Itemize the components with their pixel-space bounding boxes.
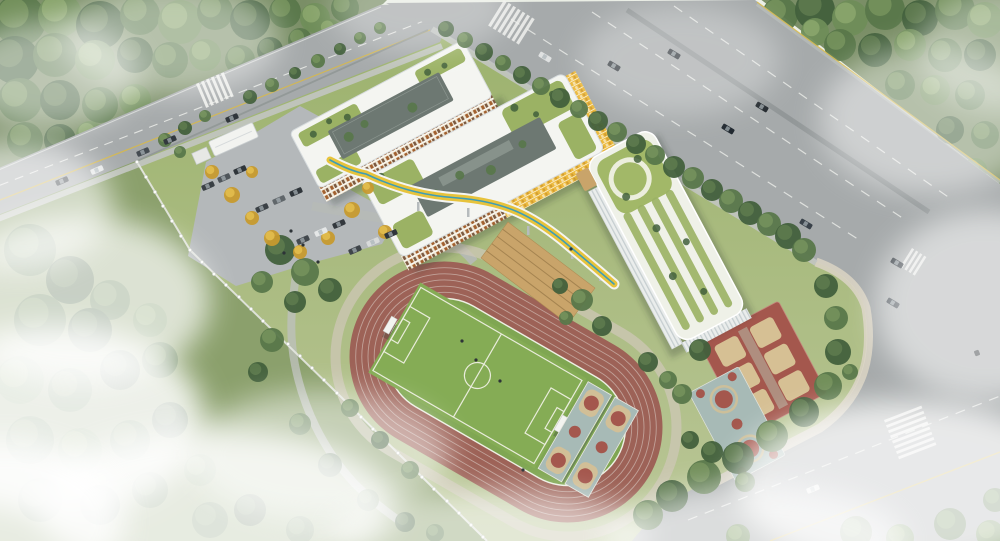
tree (344, 202, 360, 218)
tree (178, 121, 192, 135)
fence-post (249, 307, 252, 310)
tree (659, 371, 677, 389)
tree (681, 431, 699, 449)
person-dot (569, 247, 572, 250)
tree (814, 372, 842, 400)
fence-post (170, 219, 173, 222)
tree (284, 291, 306, 313)
tree (645, 145, 665, 165)
fence-post (144, 175, 147, 178)
campus-aerial-rendering (0, 0, 1000, 541)
tree (475, 43, 493, 61)
fence-post (322, 378, 325, 381)
tree (291, 258, 319, 286)
fence-post (310, 366, 313, 369)
person-dot (289, 229, 292, 232)
tree (814, 274, 838, 298)
person-dot (498, 379, 501, 382)
fence-post (161, 204, 164, 207)
tree (607, 122, 627, 142)
tree (311, 54, 325, 68)
fence-post (179, 234, 182, 237)
tree (495, 55, 511, 71)
tree (362, 182, 374, 194)
tree (205, 165, 219, 179)
tree (199, 110, 211, 122)
fence-post (432, 487, 435, 490)
tree (638, 352, 658, 372)
fence-post (237, 295, 240, 298)
tree (174, 146, 186, 158)
tree (289, 67, 301, 79)
tree (570, 100, 588, 118)
tree (842, 364, 858, 380)
fence-post (224, 283, 227, 286)
tree (626, 134, 646, 154)
tree (245, 211, 259, 225)
tree (550, 88, 570, 108)
fence-post (188, 248, 191, 251)
fence-post (261, 319, 264, 322)
rendering-canvas (0, 0, 1000, 541)
person-dot (460, 339, 463, 342)
tree (682, 167, 704, 189)
tree (246, 166, 258, 178)
tree (559, 311, 573, 325)
fence-post (153, 190, 156, 193)
tree (689, 339, 711, 361)
tree (334, 43, 346, 55)
fence-post (200, 260, 203, 263)
tree (571, 289, 593, 311)
person-dot (474, 358, 477, 361)
tree (701, 441, 723, 463)
tree (825, 339, 851, 365)
fence-post (135, 160, 138, 163)
person-dot (316, 260, 319, 263)
tree (264, 230, 280, 246)
fence-post (298, 354, 301, 357)
tree (513, 66, 531, 84)
tree (318, 278, 342, 302)
person-dot (301, 243, 304, 246)
tree (251, 271, 273, 293)
tree (265, 78, 279, 92)
tree (672, 384, 692, 404)
fence-post (212, 272, 215, 275)
mist-blob (580, 5, 780, 115)
tree (588, 111, 608, 131)
tree (792, 238, 816, 262)
tree (824, 306, 848, 330)
fence-post (286, 342, 289, 345)
tree (532, 77, 550, 95)
tree (663, 156, 685, 178)
tree (243, 90, 257, 104)
tree (260, 328, 284, 352)
person-dot (282, 251, 285, 254)
tree (224, 187, 240, 203)
tree (592, 316, 612, 336)
tree (293, 245, 307, 259)
tree (248, 362, 268, 382)
tree (552, 278, 568, 294)
person-dot (521, 468, 524, 471)
